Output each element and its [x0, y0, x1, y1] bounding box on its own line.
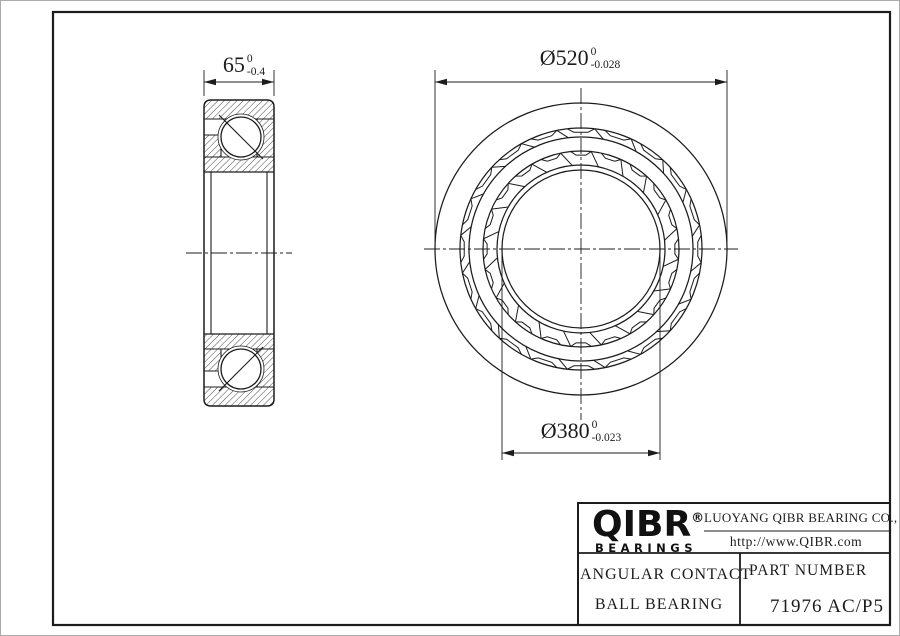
tolerance-upper: 0 [591, 46, 621, 59]
part-number-label: PART NUMBER [749, 562, 867, 580]
dimension-value: Ø520 [540, 47, 589, 69]
product-name-line1: ANGULAR CONTACT [580, 566, 738, 584]
width-dimension: 65 0 -0.4 [198, 54, 290, 79]
bore-diameter-dimension: Ø380 0 -0.023 [496, 420, 666, 445]
tolerance-lower: -0.023 [592, 432, 622, 445]
registered-trademark-icon: ® [691, 511, 704, 526]
brand-name: QIBR [592, 504, 691, 545]
dimension-tolerance: 0 -0.028 [591, 46, 621, 72]
dimension-value: Ø380 [541, 420, 590, 442]
outer-diameter-dimension: Ø520 0 -0.028 [495, 47, 665, 72]
part-number-value: 71976 AC/P5 [744, 596, 884, 618]
brand-subtitle: BEARINGS [595, 541, 697, 555]
company-name: LUOYANG QIBR BEARING CO., LTD [704, 510, 888, 526]
product-name-line2: BALL BEARING [580, 596, 738, 614]
drawing-sheet: 65 0 -0.4 Ø520 0 -0.028 Ø380 0 -0.023 QI… [0, 0, 900, 636]
dimension-value: 65 [223, 54, 245, 76]
tolerance-upper: 0 [592, 419, 622, 432]
tolerance-lower: -0.4 [247, 66, 265, 79]
dimension-tolerance: 0 -0.4 [247, 53, 265, 79]
tolerance-lower: -0.028 [591, 59, 621, 72]
brand-logo: QIBR® [592, 507, 704, 543]
tolerance-upper: 0 [247, 53, 265, 66]
dimension-tolerance: 0 -0.023 [592, 419, 622, 445]
company-website: http://www.QIBR.com [704, 534, 888, 550]
